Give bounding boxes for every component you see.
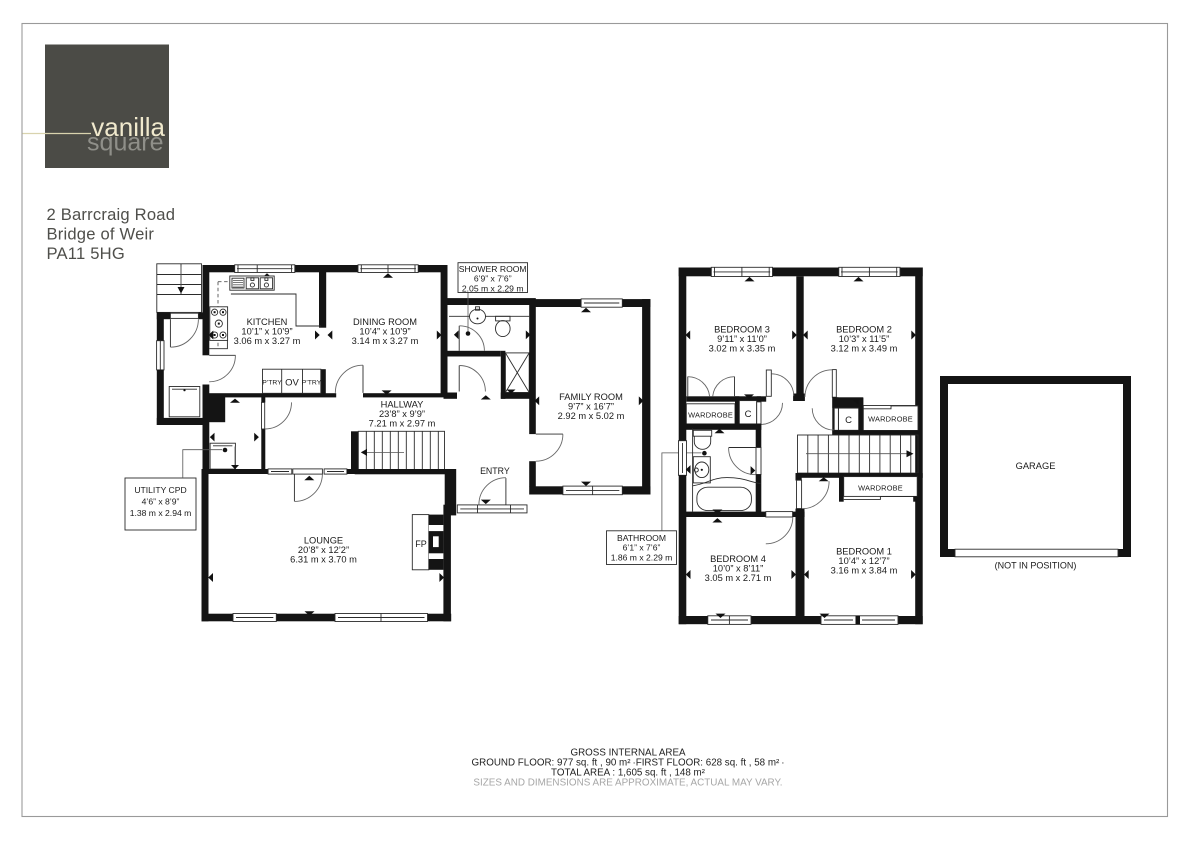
svg-text:23’8” x 9’9”: 23’8” x 9’9” bbox=[379, 409, 425, 419]
svg-text:FP: FP bbox=[415, 539, 427, 549]
svg-text:BEDROOM 3: BEDROOM 3 bbox=[714, 325, 770, 335]
svg-text:BEDROOM 2: BEDROOM 2 bbox=[836, 325, 892, 335]
svg-text:PA11 5HG: PA11 5HG bbox=[47, 244, 125, 263]
svg-text:ENTRY: ENTRY bbox=[480, 466, 510, 476]
svg-text:(NOT IN POSITION): (NOT IN POSITION) bbox=[995, 561, 1077, 571]
svg-text:10’4” x 10’9”: 10’4” x 10’9” bbox=[359, 327, 410, 337]
svg-text:6’9” x 7’6”: 6’9” x 7’6” bbox=[474, 274, 512, 284]
svg-text:GARAGE: GARAGE bbox=[1016, 461, 1056, 471]
svg-text:6.31 m x 3.70 m: 6.31 m x 3.70 m bbox=[290, 554, 357, 564]
svg-text:20’8” x 12’2”: 20’8” x 12’2” bbox=[298, 545, 349, 555]
svg-text:7.21 m x 2.97 m: 7.21 m x 2.97 m bbox=[369, 419, 436, 429]
svg-text:WARDROBE: WARDROBE bbox=[868, 415, 913, 424]
svg-text:UTILITY CPD: UTILITY CPD bbox=[134, 485, 186, 495]
svg-text:FAMILY ROOM: FAMILY ROOM bbox=[559, 392, 623, 402]
svg-text:3.12 m x 3.49 m: 3.12 m x 3.49 m bbox=[831, 344, 898, 354]
svg-text:10’3” x 11’5”: 10’3” x 11’5” bbox=[839, 334, 889, 344]
svg-text:10’1” x 10’9”: 10’1” x 10’9” bbox=[241, 327, 292, 337]
svg-text:3.02 m x 3.35 m: 3.02 m x 3.35 m bbox=[709, 344, 776, 354]
svg-text:2 Barrcraig Road: 2 Barrcraig Road bbox=[47, 205, 176, 224]
svg-text:6’1” x 7’6”: 6’1” x 7’6” bbox=[623, 543, 661, 553]
svg-text:2.92 m x 5.02 m: 2.92 m x 5.02 m bbox=[558, 411, 625, 421]
svg-text:P’TRY: P’TRY bbox=[302, 380, 322, 387]
svg-text:C: C bbox=[745, 409, 752, 420]
svg-text:LOUNGE: LOUNGE bbox=[304, 535, 343, 545]
svg-text:WARDROBE: WARDROBE bbox=[858, 484, 903, 493]
svg-text:SHOWER ROOM: SHOWER ROOM bbox=[459, 264, 527, 274]
svg-text:9’11” x 11’0”: 9’11” x 11’0” bbox=[717, 334, 767, 344]
svg-text:3.16 m x 3.84 m: 3.16 m x 3.84 m bbox=[831, 566, 898, 576]
svg-text:1.38 m x 2.94 m: 1.38 m x 2.94 m bbox=[130, 508, 192, 518]
svg-text:C: C bbox=[845, 415, 852, 426]
svg-text:HALLWAY: HALLWAY bbox=[381, 399, 424, 409]
svg-text:BATHROOM: BATHROOM bbox=[617, 533, 666, 543]
svg-text:3.05 m x 2.71 m: 3.05 m x 2.71 m bbox=[705, 573, 772, 583]
svg-text:10’4” x 12’7”: 10’4” x 12’7” bbox=[838, 556, 889, 566]
svg-text:DINING ROOM: DINING ROOM bbox=[353, 317, 417, 327]
svg-text:OV: OV bbox=[285, 378, 299, 389]
svg-text:Bridge of Weir: Bridge of Weir bbox=[47, 225, 155, 244]
svg-text:3.06 m x 3.27 m: 3.06 m x 3.27 m bbox=[234, 336, 301, 346]
svg-text:BEDROOM 4: BEDROOM 4 bbox=[710, 554, 766, 564]
svg-text:10’0” x 8’11”: 10’0” x 8’11” bbox=[713, 564, 763, 574]
svg-text:WARDROBE: WARDROBE bbox=[688, 411, 733, 420]
svg-text:P’TRY: P’TRY bbox=[262, 380, 282, 387]
svg-text:KITCHEN: KITCHEN bbox=[247, 317, 288, 327]
svg-text:9’7” x 16’7”: 9’7” x 16’7” bbox=[568, 402, 614, 412]
svg-text:square: square bbox=[87, 129, 163, 157]
svg-text:4’6” x 8’9”: 4’6” x 8’9” bbox=[142, 497, 180, 507]
svg-text:3.14 m x 3.27 m: 3.14 m x 3.27 m bbox=[352, 336, 419, 346]
svg-text:2.05 m x 2.29 m: 2.05 m x 2.29 m bbox=[462, 283, 524, 293]
svg-text:1.86 m x 2.29 m: 1.86 m x 2.29 m bbox=[611, 552, 673, 562]
svg-text:BEDROOM 1: BEDROOM 1 bbox=[836, 547, 892, 557]
svg-text:SIZES AND DIMENSIONS ARE APPRO: SIZES AND DIMENSIONS ARE APPROXIMATE, AC… bbox=[473, 778, 782, 789]
